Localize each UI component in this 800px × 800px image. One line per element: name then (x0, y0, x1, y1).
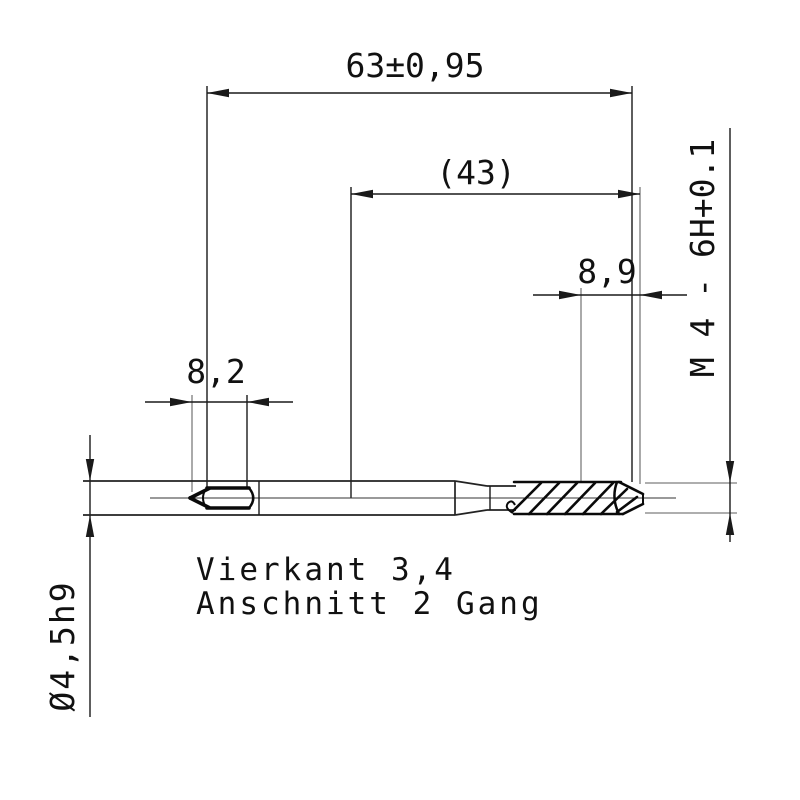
arrowhead-icon (618, 190, 640, 198)
arrowhead-icon (207, 89, 229, 97)
arrowhead-icon (86, 459, 94, 481)
arrowhead-icon (170, 398, 192, 406)
arrowhead-icon (610, 89, 632, 97)
arrowhead-icon (726, 461, 734, 483)
ref-length-label: (43) (436, 153, 515, 192)
neck-taper-bottom (455, 510, 487, 515)
arrowhead-icon (640, 291, 662, 299)
chamfer-length-label: 8,9 (577, 252, 637, 291)
overall-length-label: 63±0,95 (345, 46, 484, 85)
arrowhead-icon (86, 515, 94, 537)
shank-diameter-label: Ø4,5h9 (43, 580, 82, 711)
neck-taper-top (455, 481, 487, 486)
tap-drawing-svg: 63±0,95 (43) 8,9 8,2 M 4 - 6H+0.1 Ø4,5h9… (0, 0, 800, 800)
arrowhead-icon (247, 398, 269, 406)
note-square-size: Vierkant 3,4 (196, 552, 456, 588)
thread-spec-label: M 4 - 6H+0.1 (683, 139, 722, 377)
arrowhead-icon (559, 291, 581, 299)
tap-body (83, 481, 676, 515)
note-chamfer-form: Anschnitt 2 Gang (196, 586, 543, 622)
arrowhead-icon (351, 190, 373, 198)
dimension-lines (86, 89, 734, 717)
technical-drawing-canvas: 63±0,95 (43) 8,9 8,2 M 4 - 6H+0.1 Ø4,5h9… (0, 0, 800, 800)
extension-lines (192, 86, 737, 513)
arrowhead-icon (726, 513, 734, 535)
drawing-notes: Vierkant 3,4 Anschnitt 2 Gang (196, 552, 543, 622)
square-length-label: 8,2 (186, 352, 246, 391)
